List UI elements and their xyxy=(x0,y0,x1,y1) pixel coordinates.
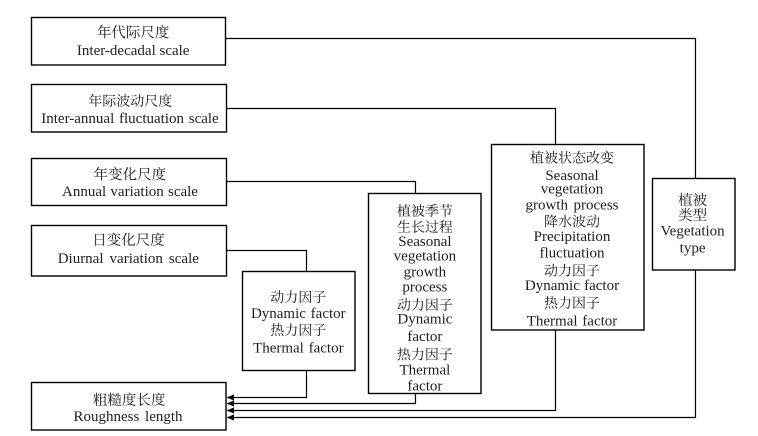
svg-text:Roughness length: Roughness length xyxy=(73,409,183,425)
svg-text:Annual variation scale: Annual variation scale xyxy=(62,184,198,200)
svg-text:vegetation: vegetation xyxy=(541,182,604,198)
svg-text:fluctuation: fluctuation xyxy=(540,246,605,262)
svg-text:Dynamic: Dynamic xyxy=(397,311,452,327)
svg-text:type: type xyxy=(680,241,706,257)
svg-text:growth: growth xyxy=(404,265,447,281)
svg-text:factor: factor xyxy=(407,379,442,395)
svg-text:Thermal: Thermal xyxy=(399,362,450,378)
svg-text:factor: factor xyxy=(407,329,442,345)
svg-text:Inter-annual fluctuation scale: Inter-annual fluctuation scale xyxy=(41,111,219,127)
svg-text:Diurnal variation scale: Diurnal variation scale xyxy=(58,251,200,267)
svg-text:process: process xyxy=(402,280,447,296)
svg-text:Vegetation: Vegetation xyxy=(661,223,726,239)
svg-text:Precipitation: Precipitation xyxy=(534,229,611,245)
svg-text:Thermal factor: Thermal factor xyxy=(253,340,344,356)
svg-text:growth process: growth process xyxy=(525,197,618,213)
svg-text:vegetation: vegetation xyxy=(394,249,457,265)
svg-text:Inter-decadal scale: Inter-decadal scale xyxy=(77,43,190,59)
svg-text:Dynamic factor: Dynamic factor xyxy=(525,278,619,294)
svg-text:Seasonal: Seasonal xyxy=(398,234,451,250)
svg-text:Thermal factor: Thermal factor xyxy=(527,313,618,329)
svg-text:Dynamic factor: Dynamic factor xyxy=(251,306,346,322)
